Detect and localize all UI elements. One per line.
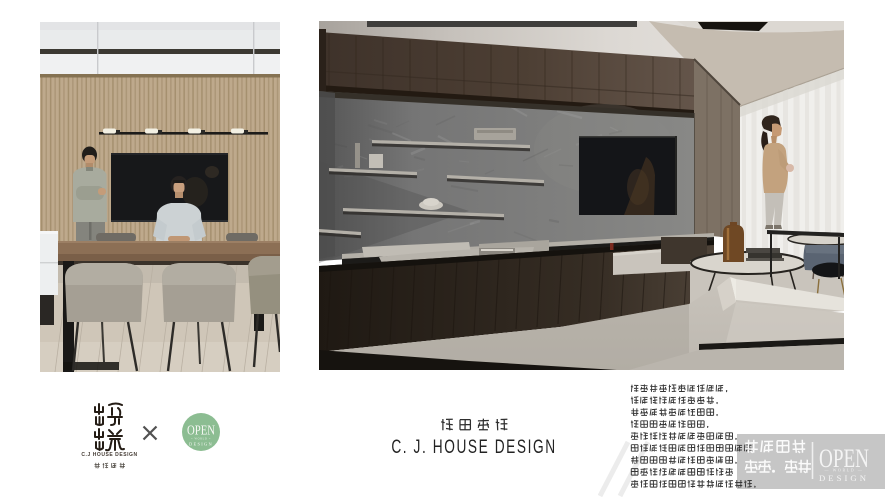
svg-text:~ WORLD ~: ~ WORLD ~ (191, 438, 211, 441)
svg-text:OPEN: OPEN (187, 423, 215, 438)
svg-text:— WORLD —: — WORLD — (824, 468, 864, 473)
svg-text:DESIGN: DESIGN (819, 473, 869, 483)
svg-text:DESIGN: DESIGN (189, 442, 213, 447)
